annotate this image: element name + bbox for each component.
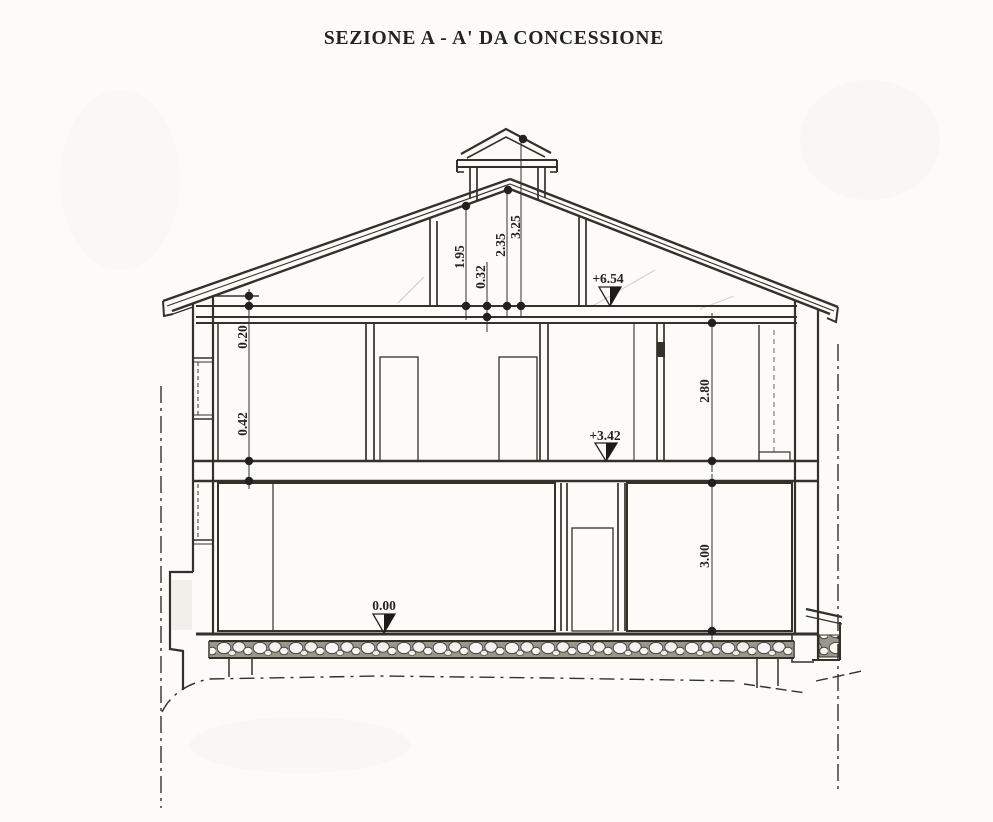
dim-label-floor-slab: 0.42 <box>235 412 250 436</box>
drawing-title: SEZIONE A - A' DA CONCESSIONE <box>324 28 664 49</box>
dim-label-eave-detail: 0.20 <box>235 325 250 349</box>
level-label-eaves: +6.54 <box>592 271 624 286</box>
dim-label-attic-height: 1.95 <box>452 245 467 269</box>
scanned-drawing-page: SEZIONE A - A' DA CONCESSIONE <box>0 0 993 822</box>
dim-label-ground-floor-height: 3.00 <box>697 544 712 568</box>
dim-label-first-floor-height: 2.80 <box>697 379 712 403</box>
dim-label-attic-slab: 0.32 <box>473 265 488 289</box>
dim-label-ridge-height: 2.35 <box>493 233 508 257</box>
dim-label-chimney-height: 3.25 <box>508 215 523 239</box>
level-label-first-floor: +3.42 <box>589 428 621 443</box>
level-label-ground: 0.00 <box>372 598 396 613</box>
section-drawing: SEZIONE A - A' DA CONCESSIONE <box>0 0 993 822</box>
